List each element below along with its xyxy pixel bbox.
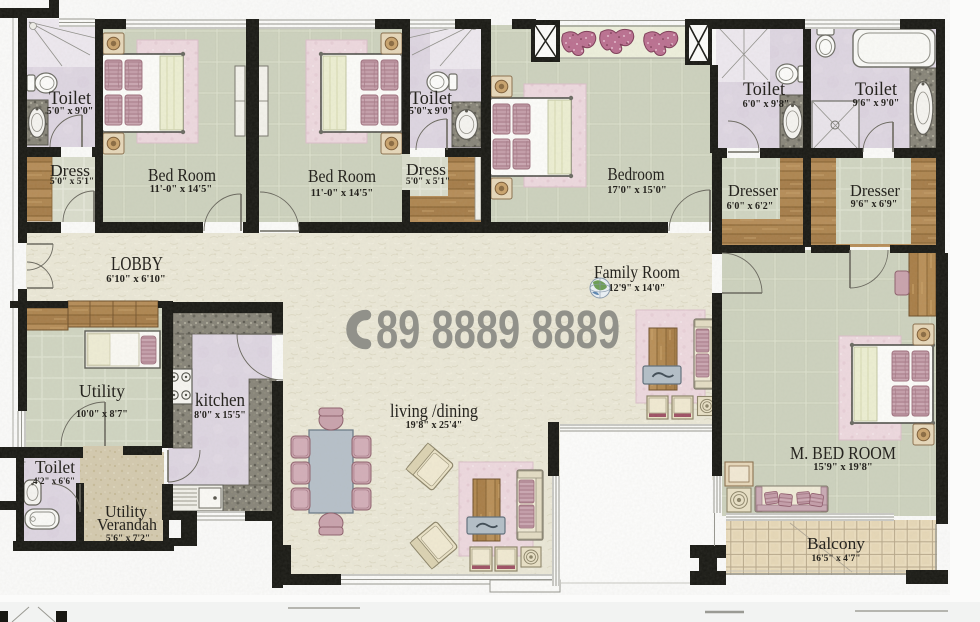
svg-text:6'0" x 9'8": 6'0" x 9'8" xyxy=(743,99,790,110)
svg-text:9'6" x 9'0": 9'6" x 9'0" xyxy=(853,98,900,109)
svg-text:8'0" x 15'5": 8'0" x 15'5" xyxy=(194,410,246,421)
svg-text:5'0" x 5'1": 5'0" x 5'1" xyxy=(50,177,94,187)
svg-text:11'-0" x 14'5": 11'-0" x 14'5" xyxy=(311,188,373,199)
svg-text:89 8889 8889: 89 8889 8889 xyxy=(376,300,620,360)
svg-text:5'0"x 9'0": 5'0"x 9'0" xyxy=(409,106,453,117)
svg-text:15'9" x 19'8": 15'9" x 19'8" xyxy=(813,462,873,473)
svg-text:living /dining: living /dining xyxy=(390,401,478,422)
svg-text:Toilet: Toilet xyxy=(743,79,786,100)
svg-text:Bed Room: Bed Room xyxy=(308,166,376,186)
svg-text:LOBBY: LOBBY xyxy=(111,254,163,275)
svg-text:17'0" x 15'0": 17'0" x 15'0" xyxy=(607,185,667,196)
svg-text:6'0" x 6'2": 6'0" x 6'2" xyxy=(727,201,774,212)
svg-text:M. BED ROOM: M. BED ROOM xyxy=(790,443,896,463)
svg-text:Toilet: Toilet xyxy=(35,457,75,477)
svg-text:16'5" x 4'7": 16'5" x 4'7" xyxy=(811,554,860,564)
svg-text:Toilet: Toilet xyxy=(855,79,898,100)
svg-text:5'0" x 9'0": 5'0" x 9'0" xyxy=(47,106,94,117)
svg-text:6'10" x 6'10": 6'10" x 6'10" xyxy=(106,274,166,285)
svg-text:10'0" x 8'7": 10'0" x 8'7" xyxy=(76,409,128,420)
svg-text:12'9" x 14'0": 12'9" x 14'0" xyxy=(609,283,666,294)
svg-text:Dresser: Dresser xyxy=(728,181,778,200)
svg-text:Verandah: Verandah xyxy=(97,515,157,534)
svg-text:Utility: Utility xyxy=(79,381,125,401)
svg-text:Family Room: Family Room xyxy=(594,262,680,282)
svg-text:4'2" x 6'6": 4'2" x 6'6" xyxy=(33,476,75,486)
svg-text:Dresser: Dresser xyxy=(850,181,900,200)
svg-text:5'0" x 5'1": 5'0" x 5'1" xyxy=(406,177,450,187)
svg-text:Bed Room: Bed Room xyxy=(148,165,216,185)
svg-text:Bedroom: Bedroom xyxy=(608,164,665,184)
svg-text:kitchen: kitchen xyxy=(195,390,245,411)
svg-text:9'6" x 6'9": 9'6" x 6'9" xyxy=(851,199,898,210)
svg-text:11'-0" x 14'5": 11'-0" x 14'5" xyxy=(150,184,212,195)
svg-text:19'8" x 25'4": 19'8" x 25'4" xyxy=(406,420,463,431)
svg-text:Balcony: Balcony xyxy=(807,534,866,553)
svg-text:5'6" x 7'2": 5'6" x 7'2" xyxy=(106,534,150,544)
